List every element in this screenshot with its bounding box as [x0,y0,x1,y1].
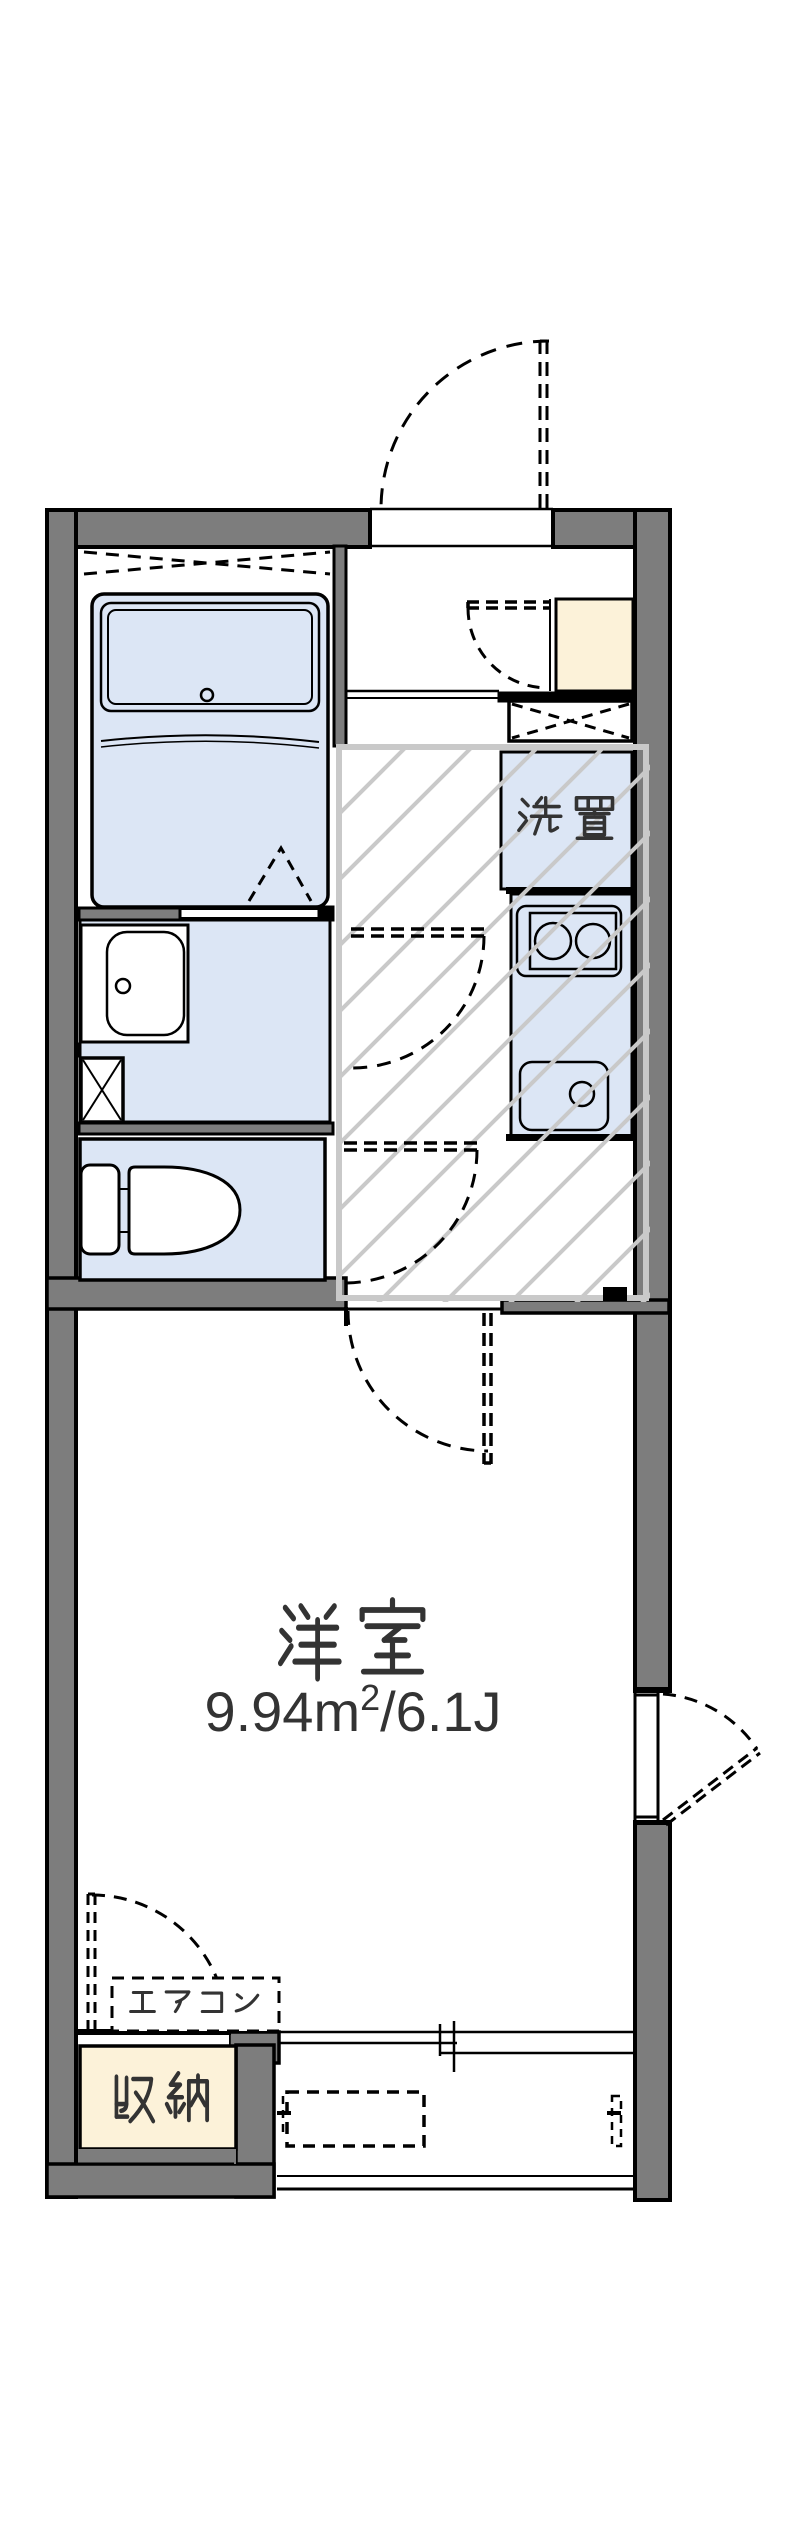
svg-text:9.94m2/6.1J: 9.94m2/6.1J [204,1677,501,1743]
